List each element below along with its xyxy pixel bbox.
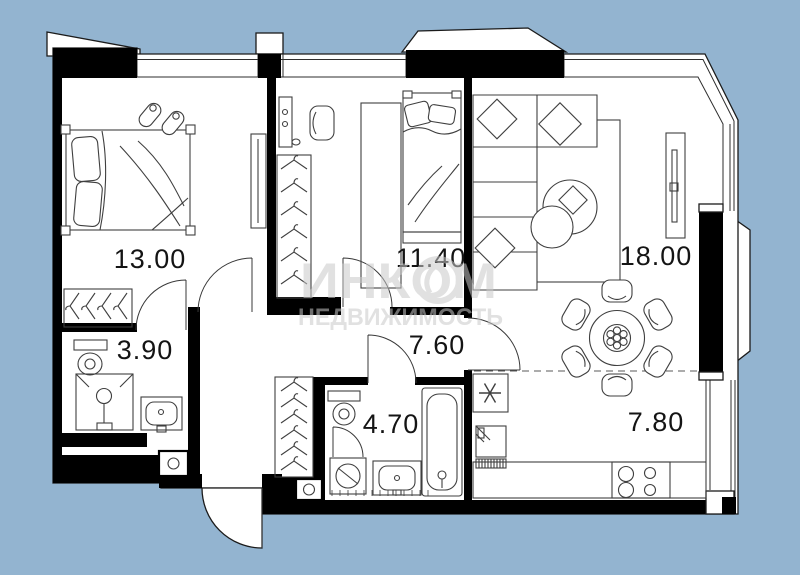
floor-plan-page: 13.00 11.40 18.00 3.90 7.60 4.70 7.80 ИН… (0, 0, 800, 575)
label-bathroom-2: 4.70 (363, 409, 420, 439)
label-kitchen: 7.80 (628, 407, 685, 437)
pillar-cap (256, 33, 283, 54)
watermark-brand: ИНКОМ (300, 253, 497, 309)
watermark: ИНКОМ НЕДВИЖИМОСТЬ (298, 253, 503, 331)
double-bed-icon (61, 125, 195, 235)
tv-unit-icon (666, 133, 685, 238)
balcony-top-middle (402, 28, 566, 52)
watermark-subtitle: НЕДВИЖИМОСТЬ (298, 304, 503, 331)
label-bedroom-1: 13.00 (114, 244, 187, 274)
duct-icon (159, 451, 188, 476)
floor-plan: 13.00 11.40 18.00 3.90 7.60 4.70 7.80 ИН… (0, 0, 800, 575)
duct-icon (296, 479, 322, 500)
label-bathroom-1: 3.90 (117, 335, 174, 365)
single-bed-icon (403, 91, 461, 243)
desk-chair-icon (310, 106, 334, 140)
label-living-room: 18.00 (620, 241, 693, 271)
pillar-cap-bottom (699, 372, 723, 380)
label-hallway: 7.60 (409, 330, 466, 360)
pillar-cap-top (699, 204, 723, 212)
dining-table-icon (590, 311, 645, 366)
entrance-door-swing (202, 488, 262, 548)
